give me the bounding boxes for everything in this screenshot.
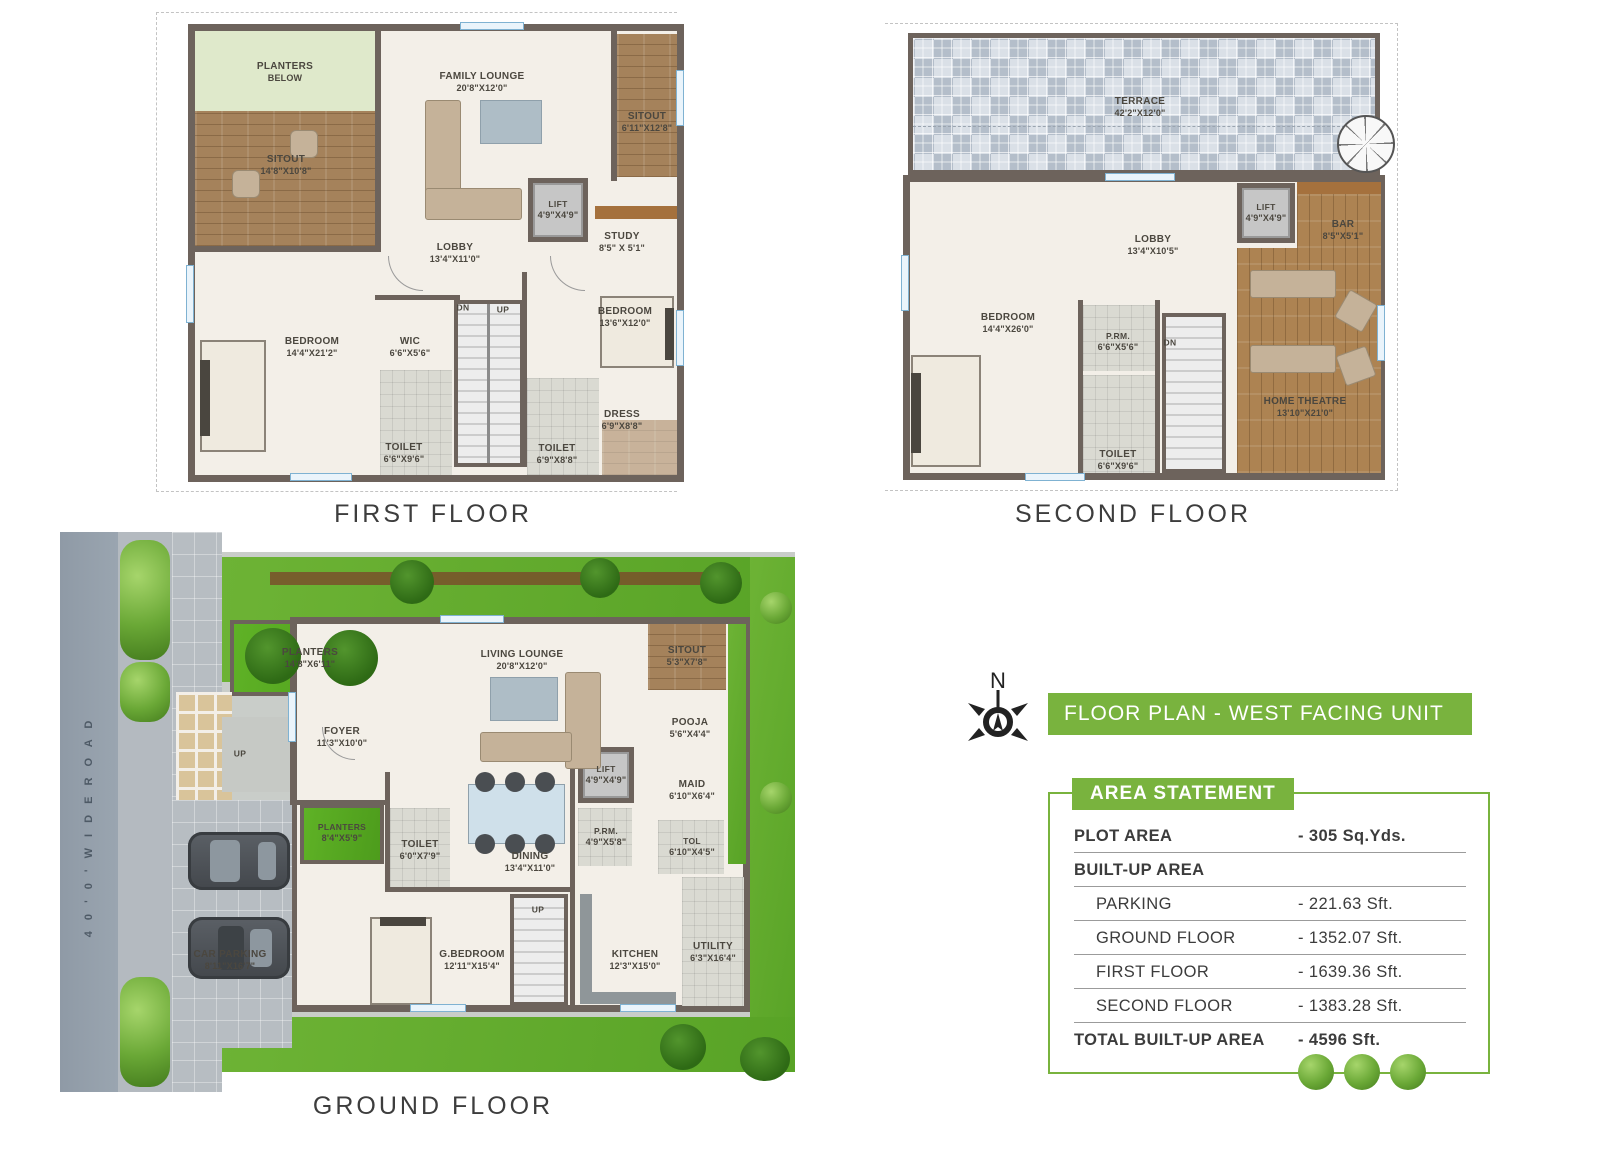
room-label-sitout-left: SITOUT14'8"X10'8" <box>260 153 311 177</box>
room-label-dress: DRESS6'9"X8'8" <box>602 408 643 432</box>
hedge-graphic <box>120 977 170 1087</box>
divider <box>1074 852 1466 853</box>
room-label-toilet: TOILET6'0"X7'9" <box>400 838 441 862</box>
dining-chair-graphic <box>505 772 525 792</box>
window-graphic <box>676 70 684 126</box>
room-label-pooja: POOJA5'6"X4'4" <box>670 716 711 740</box>
garden-bottom <box>222 1017 795 1072</box>
room-label-wic: WIC6'6"X5'6" <box>390 335 431 359</box>
ground-floor-plan: 4 0 ' 0 ' W I D E R O A D <box>60 532 795 1092</box>
garden-right <box>750 557 795 1072</box>
wall-segment <box>1078 300 1083 473</box>
room-label-kitchen: KITCHEN12'3"X15'0" <box>609 948 660 972</box>
road-label: 4 0 ' 0 ' W I D E R O A D <box>82 717 96 938</box>
room-label-dining: DINING13'4"X11'0" <box>505 850 556 874</box>
wall-segment <box>611 31 617 181</box>
room-label-living-lounge: LIVING LOUNGE20'8"X12'0" <box>481 648 564 672</box>
window-graphic <box>186 265 194 323</box>
window-graphic <box>901 255 909 311</box>
room-label-lift: LIFT4'9"X4'9" <box>538 199 579 221</box>
sofa-graphic <box>480 732 572 762</box>
area-row-plot: PLOT AREA - 305 Sq.Yds. <box>1074 820 1466 853</box>
area-row-value: - 1383.28 Sft. <box>1298 997 1466 1016</box>
area-row-first: FIRST FLOOR - 1639.36 Sft. <box>1074 956 1466 989</box>
rug-graphic <box>490 677 558 721</box>
area-row-label: PARKING <box>1074 895 1298 914</box>
window-graphic <box>440 615 504 623</box>
bush-graphic <box>760 592 792 624</box>
second-floor-plan: TERRACE42'2"X12'0" LIFT4'9"X4'9" BAR8'5"… <box>875 15 1405 495</box>
kitchen-counter <box>580 894 592 1004</box>
room-label-planters-below: PLANTERSBELOW <box>257 60 313 84</box>
area-row-label: GROUND FLOOR <box>1074 929 1298 948</box>
window-graphic <box>1105 173 1175 181</box>
room-label-toilet-1: TOILET6'6"X9'6" <box>384 441 425 465</box>
floorplan-brochure: { "banner": { "text": "FLOOR PLAN - WEST… <box>0 0 1600 1168</box>
room-label-bar: BAR8'5"X5'1" <box>1323 218 1364 242</box>
theatre-sofa-graphic <box>1250 345 1336 373</box>
divider <box>1074 1022 1466 1023</box>
room-label-terrace: TERRACE42'2"X12'0" <box>1114 95 1165 119</box>
wall-segment <box>390 887 570 892</box>
wall-segment <box>375 31 381 252</box>
compass-icon <box>966 690 1030 750</box>
area-row-label: PLOT AREA <box>1074 827 1298 846</box>
area-row-label: BUILT-UP AREA <box>1074 861 1298 880</box>
area-row-ground: GROUND FLOOR - 1352.07 Sft. <box>1074 922 1466 955</box>
area-row-second: SECOND FLOOR - 1383.28 Sft. <box>1074 990 1466 1023</box>
room-label-planters: PLANTERS14'8"X6'11" <box>282 646 338 670</box>
first-floor-title: FIRST FLOOR <box>334 500 532 529</box>
room-label-lift: LIFT4'9"X4'9" <box>586 764 627 786</box>
plan-banner: FLOOR PLAN - WEST FACING UNIT W1 <box>1048 693 1472 735</box>
window-graphic <box>460 22 524 30</box>
room-label-lobby: LOBBY13'4"X10'5" <box>1127 233 1178 257</box>
stair-label-up: UP <box>532 904 544 915</box>
wall-segment <box>1155 300 1160 473</box>
bed-graphic <box>370 917 432 1005</box>
area-row-value: - 305 Sq.Yds. <box>1298 827 1466 846</box>
stair-rail <box>487 304 490 463</box>
dining-chair-graphic <box>475 772 495 792</box>
sitout-left-deck <box>195 111 377 246</box>
bush-icon <box>1390 1054 1426 1090</box>
tree-graphic <box>700 562 742 604</box>
window-graphic <box>288 692 296 742</box>
area-row-parking: PARKING - 221.63 Sft. <box>1074 888 1466 921</box>
area-row-label: TOTAL BUILT-UP AREA <box>1074 1031 1298 1050</box>
area-statement-title: AREA STATEMENT <box>1072 778 1294 810</box>
hedge-graphic <box>120 540 170 660</box>
kitchen-counter <box>580 992 676 1004</box>
window-graphic <box>676 310 684 366</box>
pooja-side-grass <box>728 624 746 864</box>
bush-icon <box>1344 1054 1380 1090</box>
room-label-foyer: FOYER11'3"X10'0" <box>317 725 368 749</box>
room-label-prm: P.RM.4'9"X5'8" <box>586 826 627 848</box>
wall-segment <box>290 800 390 805</box>
room-label-car-parking: CAR PARKING8'11"X16'7" <box>193 948 266 972</box>
divider <box>1074 988 1466 989</box>
room-label-study: STUDY8'5" X 5'1" <box>599 230 645 254</box>
spiral-stair <box>1337 115 1395 173</box>
bar-counter <box>1297 182 1381 194</box>
room-label-sitout-right: SITOUT6'11"X12'8" <box>622 110 673 134</box>
room-label-gbedroom: G.BEDROOM12'11"X15'4" <box>439 948 504 972</box>
stair-label-dn: DN <box>457 302 470 313</box>
rug-graphic <box>480 100 542 144</box>
room-label-family-lounge: FAMILY LOUNGE20'8"X12'0" <box>439 70 524 94</box>
flower-bed <box>270 572 740 585</box>
sofa-graphic <box>425 188 522 220</box>
divider <box>1074 920 1466 921</box>
bed-graphic <box>200 340 266 452</box>
tree-graphic <box>390 560 434 604</box>
window-graphic <box>620 1004 676 1012</box>
room-label-home-theatre: HOME THEATRE13'10"X21'0" <box>1264 395 1347 419</box>
stair-label-dn: DN <box>1164 337 1177 348</box>
tree-graphic <box>660 1024 706 1070</box>
room-label-bedroom-right: BEDROOM13'6"X12'0" <box>598 305 652 329</box>
tree-graphic <box>580 558 620 598</box>
room-label-utility: UTILITY6'3"X16'4" <box>690 940 736 964</box>
area-row-label: SECOND FLOOR <box>1074 997 1298 1016</box>
second-floor-title: SECOND FLOOR <box>1015 500 1251 529</box>
dining-chair-graphic <box>535 772 555 792</box>
bush-icon <box>1298 1054 1334 1090</box>
area-row-builtup: BUILT-UP AREA <box>1074 854 1466 887</box>
divider <box>1074 886 1466 887</box>
hedge-graphic <box>120 662 170 722</box>
window-graphic <box>1025 473 1085 481</box>
room-label-lift: LIFT4'9"X4'9" <box>1246 202 1287 224</box>
study-desk <box>595 206 677 219</box>
area-row-value: - 1352.07 Sft. <box>1298 929 1466 948</box>
wall-segment <box>375 295 460 300</box>
area-row-value: - 221.63 Sft. <box>1298 895 1466 914</box>
theatre-sofa-graphic <box>1250 270 1336 298</box>
wall-segment <box>570 742 575 1007</box>
area-statement-box: AREA STATEMENT PLOT AREA - 305 Sq.Yds. B… <box>1048 792 1490 1074</box>
armchair-graphic <box>232 170 260 198</box>
room-label-tol: TOL6'10"X4'5" <box>669 836 715 858</box>
wall-segment <box>195 246 381 252</box>
room-label-bedroom: BEDROOM14'4"X26'0" <box>981 311 1035 335</box>
window-graphic <box>1377 305 1385 361</box>
window-graphic <box>290 473 352 481</box>
entry-label-up: UP <box>234 748 246 759</box>
window-graphic <box>410 1004 466 1012</box>
wall-segment <box>385 772 390 892</box>
room-label-lobby: LOBBY13'4"X11'0" <box>430 241 481 265</box>
room-label-planters-small: PLANTERS8'4"X5'9" <box>318 822 366 844</box>
area-row-value: - 1639.36 Sft. <box>1298 963 1466 982</box>
stair-label-up: UP <box>497 304 509 315</box>
car-graphic <box>188 832 290 890</box>
room-label-sitout: SITOUT5'3"X7'8" <box>667 644 708 668</box>
room-label-maid: MAID6'10"X6'4" <box>669 778 715 802</box>
tree-graphic <box>740 1037 790 1081</box>
bush-graphic <box>760 782 792 814</box>
area-row-total: TOTAL BUILT-UP AREA - 4596 Sft. <box>1074 1024 1466 1057</box>
sitout-right-deck <box>617 34 677 177</box>
room-label-prm: P.RM.6'6"X5'6" <box>1098 331 1139 353</box>
area-row-label: FIRST FLOOR <box>1074 963 1298 982</box>
dining-chair-graphic <box>475 834 495 854</box>
room-label-toilet: TOILET6'6"X9'6" <box>1098 448 1139 472</box>
bed-graphic <box>911 355 981 467</box>
area-row-value: - 4596 Sft. <box>1298 1031 1466 1050</box>
ground-floor-title: GROUND FLOOR <box>313 1092 553 1121</box>
divider <box>1074 954 1466 955</box>
room-label-bedroom-left: BEDROOM14'4"X21'2" <box>285 335 339 359</box>
first-floor-plan: PLANTERSBELOW SITOUT14'8"X10'8" FAMILY L… <box>170 10 710 502</box>
room-label-toilet-2: TOILET6'9"X8'8" <box>537 442 578 466</box>
